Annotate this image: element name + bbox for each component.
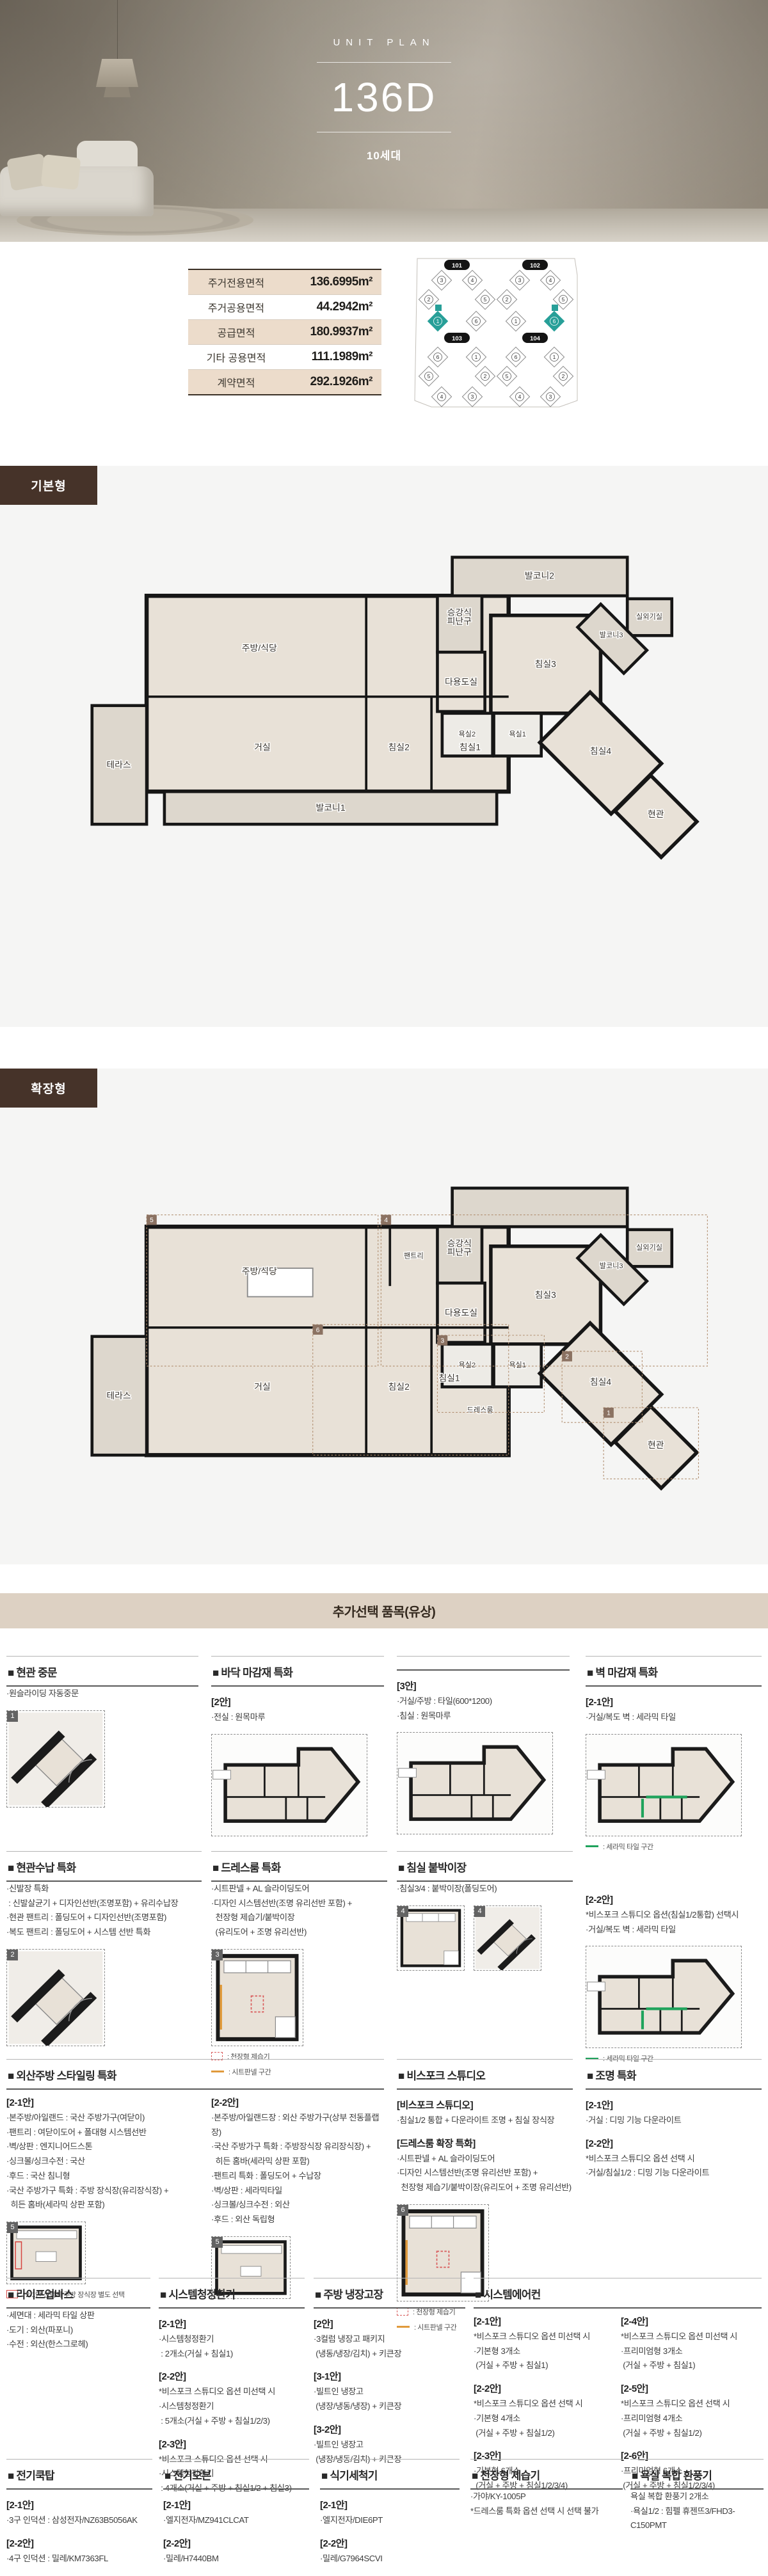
plan-type-label-extended: 확장형 bbox=[0, 1069, 97, 1108]
option-plan-tag: [2-2안] bbox=[586, 1893, 762, 1906]
thumbnails: 5 bbox=[6, 2222, 195, 2284]
section-column: ·원슬라이딩 자동중문 1 bbox=[6, 1687, 198, 1808]
option-line: ·후드 : 국산 침니형 bbox=[6, 2169, 195, 2184]
plan-thumbnail: 5 bbox=[6, 2222, 86, 2284]
zone-number-badge: 4 bbox=[397, 1906, 408, 1917]
section-title bbox=[397, 1656, 570, 1671]
thumbnails: 2 bbox=[6, 1949, 202, 2046]
section-column: [2안]·전실 : 원목마루 bbox=[211, 1695, 384, 1836]
room-label: 테라스 bbox=[106, 1390, 131, 1401]
room-label: 욕실1 bbox=[509, 730, 526, 738]
area-value: 180.9937m² bbox=[284, 325, 381, 339]
area-row: 공급면적 180.9937m² bbox=[188, 319, 381, 344]
area-row: 기타 공용면적 111.1989m² bbox=[188, 344, 381, 369]
area-label: 주거공용면적 bbox=[188, 299, 284, 315]
section-column: ·세면대 : 세라믹 타일 상판·도기 : 외산(파포니)·수전 : 외산(한스… bbox=[6, 2309, 150, 2352]
option-line: ·시트판넬 + AL 슬라이딩도어 bbox=[211, 1882, 387, 1896]
section-column: 욕실 복합 환풍기 2개소·욕실1/2 : 힘펠 휴젠뜨3/FHD3-C150P… bbox=[630, 2490, 764, 2533]
option-plan-tag: [비스포크 스튜디오] bbox=[397, 2098, 573, 2111]
option-line: *비스포크 스튜디오 옵션 미선택 시 bbox=[621, 2330, 762, 2344]
svg-text:102: 102 bbox=[530, 262, 540, 269]
room-label: 실외기실 bbox=[636, 1243, 662, 1252]
option-line: ·팬트리 : 여닫이도어 + 폴대형 시스템선반 bbox=[6, 2126, 195, 2140]
option-line: 천장형 제습기/붙박이장 bbox=[211, 1911, 387, 1925]
option-line: 욕실 복합 환풍기 2개소 bbox=[630, 2490, 764, 2504]
option-line: : 2개소(거실 + 침실1) bbox=[159, 2347, 305, 2362]
option-section-import-kitchen: ■ 외산주방 스타일링 특화[2-1안]·본주방/아일랜드 : 국산 주방가구(… bbox=[6, 2059, 384, 2090]
room-label: 다용도실 bbox=[445, 676, 477, 687]
option-plan-tag: [2-1안] bbox=[159, 2317, 305, 2330]
room-label: 테라스 bbox=[106, 759, 131, 770]
svg-text:4: 4 bbox=[440, 394, 444, 400]
section-title: ■ 전기쿡탑 bbox=[6, 2459, 152, 2490]
section-title: ■ 현관 중문 bbox=[6, 1656, 198, 1687]
option-section-system-aircon: ■ 시스템에어컨[2-1안]*비스포크 스튜디오 옵션 미선택 시·기본형 3개… bbox=[474, 2278, 762, 2309]
option-line: *비스포크 스튜디오 옵션 선택 시 bbox=[474, 2397, 609, 2412]
room-label: 침실4 bbox=[590, 1377, 612, 1387]
option-plan-tag: [2-2안] bbox=[211, 2095, 384, 2109]
room-label: 침실3 bbox=[535, 658, 557, 669]
zone-number-badge: 5 bbox=[7, 2222, 18, 2233]
svg-text:2: 2 bbox=[562, 373, 565, 379]
section-column: ·시트판넬 + AL 슬라이딩도어·디자인 시스템선반(조명 유리선반 포함) … bbox=[211, 1882, 387, 2077]
option-plan-tag: [3-2안] bbox=[314, 2422, 465, 2436]
section-column: [2-2안]·본주방/아일랜드장 : 외산 주방가구(상부 전동플랩장)·국산 … bbox=[211, 2087, 384, 2299]
option-line: ·침실1/2 통합 + 다운라이트 조명 + 침실 장식장 bbox=[397, 2113, 573, 2128]
svg-text:103: 103 bbox=[452, 335, 462, 342]
option-line: (거실 + 주방 + 침실1) bbox=[621, 2358, 762, 2373]
room-label: 거실 bbox=[254, 1381, 271, 1392]
option-line: ·빌트인 냉장고 bbox=[314, 2385, 465, 2399]
room-label: 거실 bbox=[254, 742, 271, 752]
option-line: : 5개소(거실 + 주방 + 침실1/2/3) bbox=[159, 2414, 305, 2429]
divider bbox=[317, 132, 451, 132]
option-line: ·신발장 특화 bbox=[6, 1882, 202, 1896]
section-column: [2-1안]·거실/복도 벽 : 세라믹 타일 : 세라믹 타일 구간 bbox=[586, 1695, 762, 1852]
svg-text:4: 4 bbox=[384, 1217, 388, 1224]
area-row: 주거전용면적 136.6995m² bbox=[188, 270, 381, 294]
option-line: ·거실 : 디밍 기능 다운라이트 bbox=[586, 2113, 762, 2128]
section-title: ■ 주방 냉장고장 bbox=[314, 2278, 465, 2309]
section-title: ■ 시스템에어컨 bbox=[474, 2278, 762, 2309]
option-line: (거실 + 주방 + 침실1) bbox=[474, 2358, 609, 2373]
section-column: ·가야/KY-1005P*드레스룸 특화 옵션 선택 시 선택 불가 bbox=[470, 2490, 623, 2518]
option-line: ·프리미엄형 4개소 bbox=[621, 2412, 762, 2426]
option-plan-tag: [2-1안] bbox=[6, 2498, 152, 2511]
room-label: 침실1 bbox=[460, 742, 481, 752]
option-line: ·가야/KY-1005P bbox=[470, 2490, 623, 2504]
room-label: 드레스룸 bbox=[467, 1406, 493, 1414]
svg-text:3: 3 bbox=[471, 394, 474, 400]
option-line: ·기본형 4개소 bbox=[474, 2412, 609, 2426]
room-label: 침실3 bbox=[535, 1289, 557, 1300]
plan-thumbnail: 4 bbox=[474, 1905, 541, 1971]
plan-thumbnail bbox=[397, 1732, 553, 1834]
svg-text:5: 5 bbox=[506, 373, 509, 379]
option-line: *비스포크 스튜디오 옵션 미선택 시 bbox=[159, 2385, 305, 2399]
option-plan-tag: [2-1안] bbox=[586, 1695, 762, 1708]
option-line: *드레스룸 특화 옵션 선택 시 선택 불가 bbox=[470, 2504, 623, 2519]
area-value: 111.1989m² bbox=[284, 350, 381, 364]
option-line: ·밀레/G7964SCVI bbox=[320, 2552, 460, 2566]
area-value: 292.1926m² bbox=[284, 375, 381, 389]
room-label: 승강식피난구 bbox=[447, 1238, 472, 1257]
option-line: ·빌트인 냉장고 bbox=[314, 2438, 465, 2453]
section-column: [2-1안]·거실 : 디밍 기능 다운라이트[2-2안]*비스포크 스튜디오 … bbox=[586, 2098, 762, 2181]
option-section-lighting: ■ 조명 특화[2-1안]·거실 : 디밍 기능 다운라이트[2-2안]*비스포… bbox=[586, 2059, 762, 2181]
option-plan-tag: [2-1안] bbox=[474, 2314, 609, 2328]
svg-text:4: 4 bbox=[518, 394, 522, 400]
option-line: : 신발살균기 + 디자인선반(조명포함) + 유리수납장 bbox=[6, 1896, 202, 1911]
room-label: 주방/식당 bbox=[242, 1266, 277, 1276]
option-line: ·밀레/H7440BM bbox=[163, 2552, 309, 2566]
svg-text:1: 1 bbox=[607, 1410, 611, 1417]
svg-text:3: 3 bbox=[518, 277, 522, 283]
option-line: ·원슬라이딩 자동중문 bbox=[6, 1687, 198, 1701]
option-plan-tag: [2-1안] bbox=[320, 2498, 460, 2511]
plan-thumbnail: 1 bbox=[6, 1710, 105, 1808]
floor-plan-svg: 주방/식당팬트리다용도실승강식피난구침실3실외기실발코니3침실4욕실2욕실1드레… bbox=[58, 1147, 710, 1526]
svg-text:3: 3 bbox=[440, 277, 444, 283]
option-line: ·3구 인덕션 : 삼성전자/NZ63B5056AK bbox=[6, 2513, 152, 2528]
svg-text:1: 1 bbox=[436, 318, 440, 324]
svg-text:6: 6 bbox=[436, 354, 440, 360]
area-label: 기타 공용면적 bbox=[188, 349, 284, 365]
option-line: ·싱크볼/싱크수전 : 외산 bbox=[211, 2198, 384, 2213]
svg-text:4: 4 bbox=[471, 277, 474, 283]
svg-text:5: 5 bbox=[562, 296, 565, 303]
option-line: 천장형 제습기/붙박이장(유리도어 + 조명 유리선반) bbox=[397, 2181, 573, 2195]
option-section-bedroom-closet: ■ 침실 붙박이장·침실3/4 : 붙박이장(폴딩도어) 4 4 bbox=[397, 1851, 573, 1971]
room-label: 실외기실 bbox=[636, 612, 662, 621]
section-title: ■ 비스포크 스튜디오 bbox=[397, 2059, 573, 2090]
svg-text:1: 1 bbox=[553, 354, 556, 360]
plan-thumbnail bbox=[586, 1734, 742, 1836]
extended-floor-plan: 주방/식당팬트리다용도실승강식피난구침실3실외기실발코니3침실4욕실2욕실1드레… bbox=[58, 1147, 710, 1529]
section-title: ■ 외산주방 스타일링 특화 bbox=[6, 2059, 384, 2090]
section-column: ·신발장 특화 : 신발살균기 + 디자인선반(조명포함) + 유리수납장·현관… bbox=[6, 1882, 202, 2046]
room-label: 주방/식당 bbox=[242, 642, 277, 653]
room-label: 발코니2 bbox=[525, 570, 554, 580]
svg-text:5: 5 bbox=[484, 296, 487, 303]
unit-type-title: 136D bbox=[0, 77, 768, 118]
svg-text:2: 2 bbox=[428, 296, 431, 303]
svg-text:1: 1 bbox=[515, 318, 518, 324]
hero-text: UNIT PLAN 136D 10세대 bbox=[0, 37, 768, 163]
option-plan-tag: [2-1안] bbox=[6, 2095, 195, 2109]
option-plan-tag: [3-1안] bbox=[314, 2369, 465, 2383]
area-table: 주거전용면적 136.6995m²주거공용면적 44.2942m²공급면적 18… bbox=[188, 269, 381, 395]
option-section-wall-finish-b: [2-2안]*비스포크 스튜디오 옵션(침실1/2통합) 선택시·거실/복도 벽… bbox=[586, 1884, 762, 2063]
option-plan-tag: [2안] bbox=[211, 1695, 384, 1708]
option-line: ·본주방/아일랜드장 : 외산 주방가구(상부 전동플랩장) bbox=[211, 2111, 384, 2140]
option-line: ·후드 : 외산 독립형 bbox=[211, 2213, 384, 2227]
zone-number-badge: 6 bbox=[397, 2205, 408, 2216]
section-title: ■ 바닥 마감재 특화 bbox=[211, 1656, 384, 1687]
section-column: [2안]·3컬럼 냉장고 패키지 (냉동/냉장/김치) + 키큰장[3-1안]·… bbox=[314, 2317, 465, 2467]
option-line: ·욕실1/2 : 힘펠 휴젠뜨3/FHD3-C150PMT bbox=[630, 2504, 764, 2533]
option-section-wall-finish-a: ■ 벽 마감재 특화[2-1안]·거실/복도 벽 : 세라믹 타일 : 세라믹 … bbox=[586, 1656, 762, 1852]
option-line: (냉장/냉동/냉장) + 키큰장 bbox=[314, 2399, 465, 2414]
section-title: ■ 현관수납 특화 bbox=[6, 1851, 202, 1882]
plan-thumbnail bbox=[211, 1734, 367, 1836]
option-plan-tag: [2안] bbox=[314, 2317, 465, 2330]
building-key-plan: 101342516102342516103615243104615243 bbox=[412, 250, 580, 413]
room-label: 발코니3 bbox=[600, 1262, 623, 1270]
zone-number-badge: 1 bbox=[7, 1711, 18, 1722]
option-section-dressroom: ■ 드레스룸 특화·시트판넬 + AL 슬라이딩도어·디자인 시스템선반(조명 … bbox=[211, 1851, 387, 2077]
option-line: (유리도어 + 조명 유리선반) bbox=[211, 1925, 387, 1940]
zone-number-badge: 2 bbox=[7, 1950, 18, 1960]
option-line: ·세면대 : 세라믹 타일 상판 bbox=[6, 2309, 150, 2323]
option-line: *비스포크 스튜디오 옵션 미선택 시 bbox=[474, 2330, 609, 2344]
option-plan-tag: [2-2안] bbox=[474, 2381, 609, 2395]
thumbnails: 1 bbox=[6, 1710, 198, 1808]
zone-number-badge: 4 bbox=[474, 1906, 485, 1917]
hero-eyebrow: UNIT PLAN bbox=[0, 37, 768, 48]
room-label: 욕실2 bbox=[459, 1361, 476, 1369]
area-label: 계약면적 bbox=[188, 374, 284, 390]
area-row: 주거공용면적 44.2942m² bbox=[188, 294, 381, 319]
section-column: [2-1안]·3구 인덕션 : 삼성전자/NZ63B5056AK[2-2안]·4… bbox=[6, 2498, 152, 2566]
option-line: ·거실/복도 벽 : 세라믹 타일 bbox=[586, 1923, 762, 1937]
option-plan-tag: [2-1안] bbox=[163, 2498, 309, 2511]
option-line: ·거실/침실1/2 : 디밍 기능 다운라이트 bbox=[586, 2166, 762, 2181]
room-label: 침실2 bbox=[388, 742, 410, 752]
svg-text:6: 6 bbox=[515, 354, 518, 360]
option-line: ·벽/상판 : 엔지니어드스톤 bbox=[6, 2140, 195, 2154]
option-section-ceiling-dehumidifier: ■ 천장형 제습기·가야/KY-1005P*드레스룸 특화 옵션 선택 시 선택… bbox=[470, 2459, 623, 2518]
section-column: [2-2안]*비스포크 스튜디오 옵션(침실1/2통합) 선택시·거실/복도 벽… bbox=[586, 1893, 762, 2063]
option-section-entrance-door: ■ 현관 중문·원슬라이딩 자동중문 1 bbox=[6, 1656, 198, 1808]
option-line: ·거실/복도 벽 : 세라믹 타일 bbox=[586, 1710, 762, 1725]
section-title: ■ 천장형 제습기 bbox=[470, 2459, 623, 2490]
section-title: ■ 침실 붙박이장 bbox=[397, 1851, 573, 1882]
option-plan-tag: [2-5안] bbox=[621, 2381, 762, 2395]
option-line: ·국산 주방가구 특화 : 주방장식장 유리장식장) + bbox=[211, 2140, 384, 2154]
option-line: ·싱크볼/싱크수전 : 국산 bbox=[6, 2154, 195, 2169]
section-title: ■ 조명 특화 bbox=[586, 2059, 762, 2090]
option-line: *비스포크 스튜디오 옵션 선택 시 bbox=[621, 2397, 762, 2412]
section-title: ■ 식기세척기 bbox=[320, 2459, 460, 2490]
svg-text:2: 2 bbox=[484, 373, 487, 379]
legend-swatch bbox=[586, 1845, 598, 1847]
option-plan-tag: [드레스룸 확장 특화] bbox=[397, 2136, 573, 2150]
section-title: ■ 드레스룸 특화 bbox=[211, 1851, 387, 1882]
option-line: ·도기 : 외산(파포니) bbox=[6, 2323, 150, 2338]
section-column: [2-1안]·본주방/아일랜드 : 국산 주방가구(여닫이)·팬트리 : 여닫이… bbox=[6, 2087, 195, 2300]
options-header: 추가선택 품목(유상) bbox=[0, 1593, 768, 1628]
option-line: ·4구 인덕션 : 밀레/KM7363FL bbox=[6, 2552, 152, 2566]
option-line: ·수전 : 외산(한스그로헤) bbox=[6, 2337, 150, 2352]
svg-text:2: 2 bbox=[565, 1353, 569, 1360]
divider bbox=[317, 62, 451, 63]
plan-thumbnail: 3 bbox=[211, 1949, 303, 2046]
household-count: 10세대 bbox=[0, 147, 768, 163]
section-title: ■ 라이프업바스 bbox=[6, 2278, 150, 2309]
plan-thumbnail: 2 bbox=[6, 1949, 105, 2046]
room-label: 침실4 bbox=[590, 746, 612, 756]
plan-thumbnail: 4 bbox=[397, 1905, 465, 1971]
option-section-entrance-storage: ■ 현관수납 특화·신발장 특화 : 신발살균기 + 디자인선반(조명포함) +… bbox=[6, 1851, 202, 2046]
plan-type-label-basic: 기본형 bbox=[0, 466, 97, 505]
option-line: ·국산 주방가구 특화 : 주방 장식장(유리장식장) + bbox=[6, 2184, 195, 2198]
area-summary: 주거전용면적 136.6995m²주거공용면적 44.2942m²공급면적 18… bbox=[0, 269, 768, 413]
option-plan-tag: [2-4안] bbox=[621, 2314, 762, 2328]
option-plan-tag: [2-2안] bbox=[6, 2536, 152, 2550]
svg-text:5: 5 bbox=[150, 1217, 154, 1224]
option-line: (거실 + 주방 + 침실1/2) bbox=[474, 2426, 609, 2441]
thumbnails bbox=[397, 1732, 570, 1834]
option-line: 히든 홈바(세라믹 상판 포함) bbox=[211, 2154, 384, 2169]
thumbnails: 4 4 bbox=[397, 1905, 573, 1971]
option-line: ·3컬럼 냉장고 패키지 bbox=[314, 2332, 465, 2347]
svg-text:6: 6 bbox=[553, 318, 556, 324]
option-plan-tag: [2-2안] bbox=[586, 2136, 762, 2150]
svg-text:2: 2 bbox=[506, 296, 509, 303]
option-section-bath-fan: ■ 욕실 복합 환풍기욕실 복합 환풍기 2개소·욕실1/2 : 힘펠 휴젠뜨3… bbox=[630, 2459, 764, 2533]
option-line: ·시스템청정환기 bbox=[159, 2399, 305, 2414]
option-section-cooktop: ■ 전기쿡탑[2-1안]·3구 인덕션 : 삼성전자/NZ63B5056AK[2… bbox=[6, 2459, 152, 2566]
room-label: 다용도실 bbox=[445, 1307, 477, 1317]
option-line: ·시스템청정환기 bbox=[159, 2332, 305, 2347]
option-line: ·기본형 3개소 bbox=[474, 2344, 609, 2359]
option-section-oven: ■ 전기오븐[2-1안]·엘지전자/MZ941CLCAT[2-2안]·밀레/H7… bbox=[163, 2459, 309, 2566]
option-line: ·거실/주방 : 타일(600*1200) bbox=[397, 1694, 570, 1709]
option-section-kitchen-fridge: ■ 주방 냉장고장[2안]·3컬럼 냉장고 패키지 (냉동/냉장/김치) + 키… bbox=[314, 2278, 465, 2467]
hero-banner: UNIT PLAN 136D 10세대 bbox=[0, 0, 768, 242]
svg-text:5: 5 bbox=[428, 373, 431, 379]
option-section-floor-finish-b: [3안]·거실/주방 : 타일(600*1200)·침실 : 원목마루 bbox=[397, 1656, 570, 1834]
option-line: ·침실3/4 : 붙박이장(폴딩도어) bbox=[397, 1882, 573, 1896]
option-line: ·디자인 시스템선반(조명 유리선반 포함) + bbox=[397, 2166, 573, 2181]
option-plan-tag: [3안] bbox=[397, 1679, 570, 1692]
section-title: ■ 욕실 복합 환풍기 bbox=[630, 2459, 764, 2490]
option-line: ·엘지전자/MZ941CLCAT bbox=[163, 2513, 309, 2528]
option-section-floor-finish-a: ■ 바닥 마감재 특화[2안]·전실 : 원목마루 bbox=[211, 1656, 384, 1836]
section-title: ■ 벽 마감재 특화 bbox=[586, 1656, 762, 1687]
option-line: ·본주방/아일랜드 : 국산 주방가구(여닫이) bbox=[6, 2111, 195, 2126]
section-column: [2-1안]·엘지전자/DIE6PT[2-2안]·밀레/G7964SCVI bbox=[320, 2498, 460, 2566]
option-line: *비스포크 스튜디오 옵션(침실1/2통합) 선택시 bbox=[586, 1908, 762, 1923]
thumbnails bbox=[211, 1734, 384, 1836]
room-label: 팬트리 bbox=[404, 1252, 424, 1260]
room-label: 현관 bbox=[648, 809, 664, 819]
option-line: ·전실 : 원목마루 bbox=[211, 1710, 384, 1725]
area-label: 주거전용면적 bbox=[188, 274, 284, 290]
option-plan-tag: [2-2안] bbox=[159, 2369, 305, 2383]
room-label: 발코니3 bbox=[600, 631, 623, 639]
option-line: ·엘지전자/DIE6PT bbox=[320, 2513, 460, 2528]
option-line: ·복도 팬트리 : 폴딩도어 + 시스템 선반 특화 bbox=[6, 1925, 202, 1940]
room-label: 욕실2 bbox=[459, 730, 476, 738]
room-label: 현관 bbox=[648, 1440, 664, 1450]
option-plan-tag: [2-1안] bbox=[586, 2098, 762, 2111]
thumbnails bbox=[586, 1946, 762, 2048]
floor-plan-svg: 주방/식당다용도실승강식피난구발코니2실외기실침실3발코니3침실4욕실2욕실1현… bbox=[58, 516, 710, 895]
room-label: 침실1 bbox=[438, 1372, 460, 1383]
room-label: 욕실1 bbox=[509, 1361, 526, 1369]
zone-number-badge: 5 bbox=[212, 2237, 223, 2248]
svg-text:6: 6 bbox=[316, 1327, 320, 1334]
option-line: ·시트판넬 + AL 슬라이딩도어 bbox=[397, 2152, 573, 2167]
area-row: 계약면적 292.1926m² bbox=[188, 369, 381, 394]
area-value: 136.6995m² bbox=[284, 275, 381, 289]
option-plan-tag: [2-3안] bbox=[159, 2437, 305, 2451]
room-label: 발코니1 bbox=[316, 802, 346, 813]
option-line: (냉동/냉장/김치) + 키큰장 bbox=[314, 2347, 465, 2362]
option-line: ·팬트리 특화 : 폴딩도어 + 수납장 bbox=[211, 2169, 384, 2184]
section-title: ■ 전기오븐 bbox=[163, 2459, 309, 2490]
option-line: ·벽/상판 : 세라믹타일 bbox=[211, 2184, 384, 2198]
svg-text:104: 104 bbox=[530, 335, 541, 342]
basic-floor-plan: 주방/식당다용도실승강식피난구발코니2실외기실침실3발코니3침실4욕실2욕실1현… bbox=[58, 516, 710, 898]
option-line: ·현관 팬트리 : 폴딩도어 + 디자인선반(조명포함) bbox=[6, 1911, 202, 1925]
legend-item: : 세라믹 타일 구간 bbox=[586, 1841, 762, 1852]
option-plan-tag: [2-2안] bbox=[163, 2536, 309, 2550]
option-line: *비스포크 스튜디오 옵션 선택 시 bbox=[586, 2152, 762, 2167]
svg-text:3: 3 bbox=[549, 394, 552, 400]
option-section-lifeup-bath: ■ 라이프업바스·세면대 : 세라믹 타일 상판·도기 : 외산(파포니)·수전… bbox=[6, 2278, 150, 2352]
option-plan-tag: [2-2안] bbox=[320, 2536, 460, 2550]
plan-thumbnail bbox=[586, 1946, 742, 2048]
option-line: 히든 홈바(세라믹 상판 포함) bbox=[6, 2198, 195, 2213]
room-label: 승강식피난구 bbox=[447, 607, 472, 626]
unit-plan-page: { "hero": { "eyebrow": "UNIT PLAN", "tit… bbox=[0, 0, 768, 2576]
section-column: ·침실3/4 : 붙박이장(폴딩도어) 4 4 bbox=[397, 1882, 573, 1971]
key-plan-svg: 101342516102342516103615243104615243 bbox=[412, 250, 580, 409]
legend-label: : 세라믹 타일 구간 bbox=[603, 1841, 653, 1852]
option-line: (거실 + 주방 + 침실1/2) bbox=[621, 2426, 762, 2441]
svg-text:1: 1 bbox=[475, 354, 478, 360]
thumbnails bbox=[586, 1734, 762, 1836]
area-label: 공급면적 bbox=[188, 324, 284, 340]
option-section-dishwasher: ■ 식기세척기[2-1안]·엘지전자/DIE6PT[2-2안]·밀레/G7964… bbox=[320, 2459, 460, 2566]
svg-text:101: 101 bbox=[452, 262, 463, 269]
svg-text:4: 4 bbox=[549, 277, 552, 283]
section-column: [2-1안]·엘지전자/MZ941CLCAT[2-2안]·밀레/H7440BM bbox=[163, 2498, 309, 2566]
zone-number-badge: 3 bbox=[212, 1950, 223, 1960]
section-column: [3안]·거실/주방 : 타일(600*1200)·침실 : 원목마루 bbox=[397, 1679, 570, 1834]
thumbnails: 3 bbox=[211, 1949, 387, 2046]
room-label: 침실2 bbox=[388, 1381, 410, 1392]
svg-text:3: 3 bbox=[441, 1337, 445, 1344]
option-line: ·디자인 시스템선반(조명 유리선반 포함) + bbox=[211, 1896, 387, 1911]
section-title: ■ 시스템청정환기 bbox=[159, 2278, 305, 2309]
svg-text:6: 6 bbox=[475, 318, 478, 324]
area-value: 44.2942m² bbox=[284, 300, 381, 314]
option-line: ·침실 : 원목마루 bbox=[397, 1709, 570, 1724]
option-line: ·프리미엄형 3개소 bbox=[621, 2344, 762, 2359]
